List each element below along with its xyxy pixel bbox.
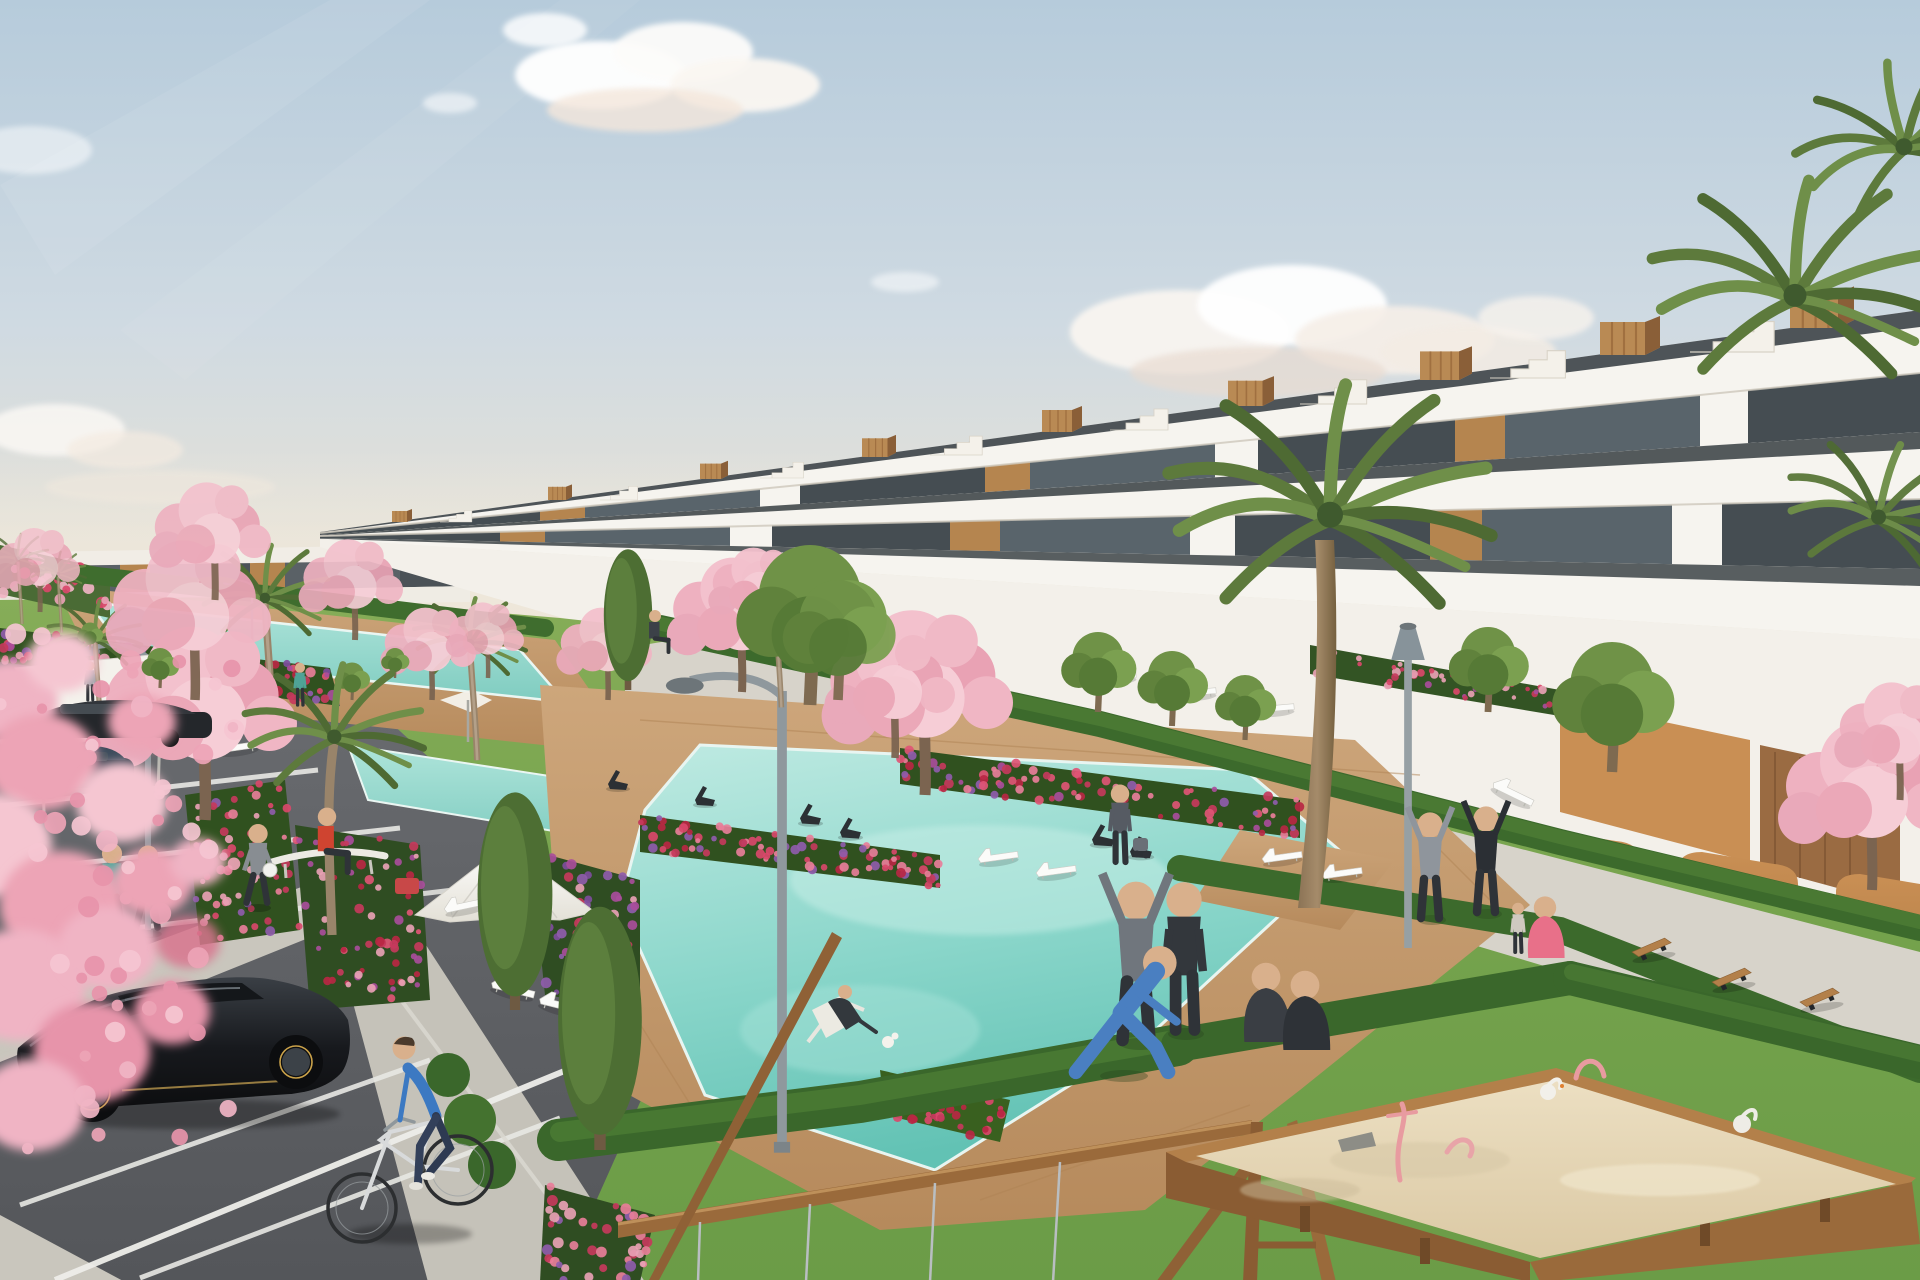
- flower-dot: [896, 868, 906, 878]
- flower-dot: [541, 977, 552, 988]
- flower-dot: [859, 845, 867, 853]
- foreground-blossom: [170, 838, 226, 886]
- window-strip-2-cell: [1482, 505, 1672, 565]
- flower-dot: [547, 1195, 558, 1206]
- flower-dot: [1008, 777, 1016, 785]
- flower-dot: [282, 835, 287, 840]
- flower-dot: [1029, 766, 1038, 775]
- flower-dot: [939, 763, 946, 770]
- flower-dot: [308, 861, 314, 867]
- flower-dot: [882, 865, 889, 872]
- flower-dot: [171, 1129, 188, 1146]
- flower-dot: [70, 793, 85, 808]
- flower-dot: [1512, 695, 1516, 699]
- flower-dot: [399, 979, 406, 986]
- flower-dot: [120, 892, 132, 904]
- rear-rim: [282, 1048, 310, 1076]
- flower-dot: [553, 1237, 564, 1248]
- flower-dot: [265, 926, 275, 936]
- flower-dot: [575, 884, 584, 893]
- flower-dot: [119, 950, 141, 972]
- flower-dot: [173, 655, 187, 669]
- flower-dot: [591, 1223, 597, 1229]
- flower-dot: [225, 835, 233, 843]
- foreground-blossom: [58, 906, 158, 990]
- flower-dot: [105, 1022, 125, 1042]
- flower-dot: [940, 785, 947, 792]
- flower-dot: [101, 597, 109, 605]
- flower-dot: [695, 838, 700, 843]
- flower-dot: [1259, 830, 1265, 836]
- flower-dot: [316, 946, 321, 951]
- bench-leg: [285, 864, 286, 878]
- flower-dot: [961, 1105, 967, 1111]
- flower-dot: [616, 895, 622, 901]
- cloud: [423, 93, 477, 113]
- flower-dot: [1356, 655, 1362, 661]
- flower-dot: [37, 703, 47, 713]
- flower-dot: [1075, 794, 1081, 800]
- flower-dot: [840, 842, 845, 847]
- flower-dot: [1002, 794, 1009, 801]
- flower-dot: [34, 810, 48, 824]
- flower-dot: [223, 897, 232, 906]
- flower-dot: [228, 809, 238, 819]
- flower-dot: [756, 836, 762, 842]
- flower-dot: [1398, 662, 1403, 667]
- flower-dot: [228, 722, 239, 733]
- flower-dot: [1270, 813, 1275, 818]
- flower-dot: [1295, 802, 1305, 812]
- flower-dot: [545, 1206, 553, 1214]
- flower-dot: [635, 1243, 641, 1249]
- flower-dot: [569, 1241, 578, 1250]
- flower-dot: [1097, 788, 1106, 797]
- sandbox-brace: [1820, 1198, 1830, 1222]
- flower-dot: [163, 981, 178, 996]
- flower-dot: [869, 848, 878, 857]
- flower-dot: [237, 851, 244, 858]
- flower-dot: [283, 887, 289, 893]
- flower-dot: [199, 840, 218, 859]
- flower-dot: [1546, 701, 1552, 707]
- flower-dot: [1127, 781, 1136, 790]
- flower-dot: [1453, 688, 1460, 695]
- flower-dot: [212, 913, 219, 920]
- flower-dot: [946, 774, 953, 781]
- flower-dot: [912, 852, 917, 857]
- flower-dot: [321, 694, 330, 703]
- flower-dot: [1158, 814, 1163, 819]
- flower-dot: [1148, 793, 1154, 799]
- flower-dot: [1273, 800, 1278, 805]
- flower-dot: [414, 854, 419, 859]
- sand-highlight: [1560, 1164, 1760, 1196]
- flower-dot: [22, 730, 41, 749]
- flower-dot: [566, 859, 576, 869]
- flower-dot: [1173, 813, 1180, 820]
- flower-dot: [85, 739, 98, 752]
- flower-dot: [268, 803, 273, 808]
- flower-dot: [931, 1114, 936, 1119]
- flower-dot: [80, 1099, 99, 1118]
- flower-dot: [660, 846, 667, 853]
- flower-dot: [155, 779, 171, 795]
- scene-root: [0, 0, 1920, 1280]
- flower-dot: [92, 680, 110, 698]
- flower-dot: [907, 1114, 917, 1124]
- flower-dot: [722, 824, 732, 834]
- flower-dot: [991, 791, 999, 799]
- flower-dot: [414, 971, 420, 977]
- flower-dot: [96, 830, 118, 852]
- flower-dot: [630, 902, 639, 911]
- flower-dot: [365, 875, 374, 884]
- flower-dot: [193, 896, 199, 902]
- flower-dot: [620, 1203, 631, 1214]
- flower-dot: [618, 872, 627, 881]
- flower-dot: [287, 665, 293, 671]
- flower-dot: [703, 849, 710, 856]
- flower-dot: [341, 947, 347, 953]
- flower-dot: [1021, 776, 1027, 782]
- flower-dot: [613, 1203, 619, 1209]
- cloud: [871, 272, 939, 292]
- flower-dot: [367, 984, 376, 993]
- flower-dot: [905, 867, 911, 873]
- flower-dot: [1400, 667, 1404, 671]
- flower-dot: [1391, 673, 1399, 681]
- flower-dot: [28, 843, 47, 862]
- flower-dot: [642, 1237, 652, 1247]
- flower-dot: [44, 812, 66, 834]
- flower-dot: [407, 976, 415, 984]
- flower-dot: [596, 1247, 607, 1258]
- flower-dot: [1049, 796, 1055, 802]
- flower-dot: [1463, 695, 1468, 700]
- bench-leg: [370, 860, 372, 874]
- scene-svg: Residential complex architectural render…: [0, 0, 1920, 1280]
- flower-dot: [640, 1261, 646, 1267]
- flower-dot: [119, 1061, 136, 1078]
- flower-dot: [1290, 825, 1296, 831]
- flower-dot: [963, 785, 971, 793]
- flower-dot: [630, 896, 637, 903]
- flower-dot: [625, 1261, 636, 1272]
- small-dog-head: [892, 1033, 899, 1040]
- flower-dot: [1205, 809, 1215, 819]
- flower-dot: [689, 845, 696, 852]
- flower-dot: [150, 903, 171, 924]
- water-highlight: [740, 985, 980, 1075]
- window-strip-2-cell: [950, 520, 1000, 551]
- flower-dot: [934, 860, 943, 869]
- flower-dot: [1218, 822, 1223, 827]
- flower-dot: [1417, 669, 1425, 677]
- shadow: [1100, 1070, 1148, 1082]
- flower-dot: [50, 954, 70, 974]
- flower-dot: [142, 1001, 157, 1016]
- window-strip-2-cell: [1000, 516, 1190, 555]
- flower-dot: [908, 751, 917, 760]
- flower-dot: [405, 893, 411, 899]
- flower-dot: [235, 893, 241, 899]
- flower-dot: [579, 1218, 588, 1227]
- flower-dot: [269, 809, 275, 815]
- flower-dot: [202, 891, 212, 901]
- flower-dot: [1357, 662, 1362, 667]
- flower-dot: [924, 856, 933, 865]
- flower-dot: [337, 969, 344, 976]
- swan-beak: [1560, 1084, 1564, 1088]
- flower-dot: [415, 982, 420, 987]
- bush: [426, 1053, 470, 1097]
- flower-dot: [682, 845, 689, 852]
- flower-dot: [283, 804, 292, 813]
- flower-dot: [165, 1006, 183, 1024]
- flower-dot: [891, 849, 897, 855]
- flower-dot: [987, 1116, 994, 1123]
- flower-dot: [1043, 772, 1051, 780]
- flower-dot: [33, 627, 51, 645]
- flower-dot: [839, 849, 848, 858]
- flower-dot: [213, 901, 221, 909]
- sandbox-brace: [1700, 1222, 1710, 1246]
- flower-dot: [92, 986, 108, 1002]
- flower-dot: [223, 660, 240, 677]
- flower-dot: [547, 1183, 555, 1191]
- flower-dot: [264, 917, 271, 924]
- flower-dot: [1032, 776, 1039, 783]
- flower-dot: [905, 762, 914, 771]
- flower-dot: [557, 929, 567, 939]
- flower-dot: [131, 696, 153, 718]
- flower-dot: [642, 1246, 651, 1255]
- flower-dot: [548, 1221, 555, 1228]
- flower-dot: [616, 1215, 624, 1223]
- flower-dot: [1191, 799, 1199, 807]
- flower-dot: [671, 849, 680, 858]
- flower-dot: [549, 1212, 559, 1222]
- flower-dot: [1468, 691, 1475, 698]
- flower-dot: [559, 1201, 569, 1211]
- red-seat-cushion: [395, 878, 419, 894]
- flower-dot: [1525, 687, 1530, 692]
- flower-dot: [1392, 665, 1397, 670]
- flower-dot: [1429, 668, 1434, 673]
- flower-dot: [584, 896, 592, 904]
- flower-dot: [84, 956, 104, 976]
- flower-dot: [679, 823, 688, 832]
- flower-dot: [628, 920, 638, 930]
- flower-dot: [758, 844, 764, 850]
- flower-dot: [407, 909, 413, 915]
- flower-dot: [790, 845, 800, 855]
- window-strip-2-cell: [1672, 504, 1722, 566]
- flower-dot: [642, 825, 648, 831]
- flower-dot: [204, 914, 210, 920]
- flower-dot: [375, 884, 381, 890]
- flower-dot: [72, 816, 91, 835]
- flower-dot: [76, 973, 87, 984]
- stroller-wheel: [1143, 852, 1150, 859]
- flower-dot: [924, 871, 931, 878]
- window-strip-2-cell: [730, 526, 772, 547]
- cloud: [503, 13, 587, 47]
- flower-dot: [1102, 776, 1111, 785]
- flower-dot: [414, 955, 422, 963]
- flower-dot: [810, 843, 817, 850]
- flower-dot: [1054, 792, 1064, 802]
- flower-dot: [343, 841, 349, 847]
- flower-dot: [355, 946, 360, 951]
- flower-dot: [387, 994, 395, 1002]
- flower-dot: [296, 923, 303, 930]
- flower-dot: [766, 847, 775, 856]
- flower-dot: [891, 856, 897, 862]
- flower-dot: [276, 888, 282, 894]
- flower-dot: [648, 832, 658, 842]
- cyclist-shoe: [421, 1172, 435, 1180]
- flower-dot: [739, 839, 748, 848]
- flower-dot: [231, 796, 238, 803]
- flower-dot: [866, 865, 872, 871]
- flower-dot: [1293, 797, 1299, 803]
- flower-dot: [168, 886, 182, 900]
- flower-dot: [937, 1114, 945, 1122]
- flower-dot: [658, 823, 666, 831]
- flower-dot: [276, 785, 283, 792]
- flower-dot: [254, 813, 260, 819]
- flower-dot: [1253, 825, 1260, 832]
- flower-dot: [851, 868, 859, 876]
- flower-dot: [383, 863, 390, 870]
- flower-dot: [209, 678, 222, 691]
- flower-dot: [148, 737, 161, 750]
- flower-dot: [416, 929, 421, 934]
- flower-dot: [696, 845, 703, 852]
- flower-dot: [228, 858, 241, 871]
- flower-dot: [182, 823, 200, 841]
- flower-dot: [736, 848, 745, 857]
- flower-dot: [127, 667, 139, 679]
- flower-dot: [1212, 787, 1217, 792]
- flower-dot: [1015, 785, 1024, 794]
- stroller: [1133, 838, 1148, 851]
- flower-dot: [1172, 801, 1180, 809]
- flower-dot: [1061, 782, 1070, 791]
- flower-dot: [92, 1128, 106, 1142]
- flower-dot: [390, 944, 399, 953]
- cloud: [1478, 296, 1594, 340]
- flower-dot: [997, 782, 1004, 789]
- cloud: [67, 431, 183, 469]
- flower-dot: [305, 667, 315, 677]
- flower-dot: [1220, 798, 1229, 807]
- architectural-render: Residential complex architectural render…: [0, 0, 1920, 1280]
- flower-dot: [251, 923, 258, 930]
- flower-dot: [22, 1143, 34, 1155]
- flower-dot: [1288, 816, 1297, 825]
- flower-dot: [982, 1126, 988, 1132]
- flower-dot: [93, 865, 114, 886]
- flower-dot: [81, 750, 97, 766]
- flower-dot: [1074, 771, 1082, 779]
- flower-dot: [409, 842, 418, 851]
- flower-dot: [62, 586, 70, 594]
- flower-dot: [414, 942, 423, 951]
- flower-dot: [965, 1130, 975, 1140]
- flower-dot: [189, 1024, 206, 1041]
- flower-dot: [193, 744, 213, 764]
- flower-dot: [958, 780, 963, 785]
- flower-dot: [320, 929, 326, 935]
- flower-dot: [392, 959, 400, 967]
- flower-dot: [78, 896, 99, 917]
- flower-dot: [587, 1245, 597, 1255]
- sand-shading: [1240, 1178, 1360, 1202]
- flower-dot: [1425, 681, 1432, 688]
- flower-dot: [1084, 781, 1090, 787]
- flower-dot: [1538, 686, 1546, 694]
- flower-dot: [979, 781, 988, 790]
- flower-dot: [687, 829, 693, 835]
- flower-dot: [252, 791, 261, 800]
- flower-dot: [388, 979, 395, 986]
- flower-dot: [59, 885, 76, 902]
- flower-dot: [1439, 673, 1444, 678]
- flower-dot: [346, 982, 352, 988]
- flower-dot: [1011, 759, 1020, 768]
- flower-dot: [1076, 778, 1083, 785]
- flower-dot: [805, 861, 815, 871]
- flower-dot: [577, 874, 588, 885]
- flower-dot: [376, 948, 385, 957]
- flower-dot: [1534, 689, 1539, 694]
- flower-dot: [324, 672, 329, 677]
- flower-dot: [638, 820, 644, 826]
- flower-dot: [901, 771, 908, 778]
- cloud: [547, 88, 743, 132]
- flower-dot: [1386, 679, 1392, 685]
- flower-dot: [307, 691, 313, 697]
- window-strip-1-cell: [1700, 390, 1748, 446]
- flower-dot: [394, 915, 403, 924]
- flower-dot: [629, 879, 634, 884]
- flower-dot: [165, 795, 182, 812]
- flower-dot: [1132, 793, 1140, 801]
- flower-dot: [1263, 791, 1273, 801]
- flower-dot: [556, 1262, 563, 1269]
- flower-dot: [368, 912, 376, 920]
- flower-dot: [358, 884, 364, 890]
- sandbox-brace: [1420, 1238, 1430, 1264]
- flower-dot: [152, 815, 164, 827]
- flower-dot: [238, 909, 245, 916]
- flower-dot: [255, 780, 262, 787]
- flower-dot: [296, 837, 302, 843]
- cyclist-shoe: [409, 1182, 423, 1190]
- flower-dot: [997, 1109, 1005, 1117]
- flower-dot: [711, 836, 717, 842]
- flower-dot: [1264, 819, 1272, 827]
- flower-dot: [748, 837, 757, 846]
- flower-dot: [935, 883, 940, 888]
- flower-dot: [1071, 790, 1077, 796]
- flower-dot: [992, 769, 1001, 778]
- flower-dot: [239, 925, 248, 934]
- flower-dot: [542, 1244, 553, 1255]
